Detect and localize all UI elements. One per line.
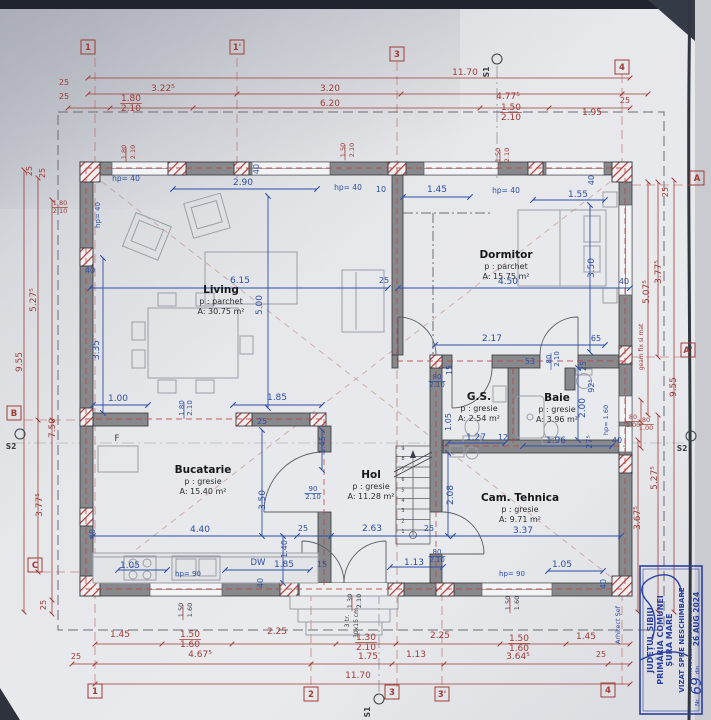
dim-label: 1.50 <box>509 634 529 644</box>
grid-marker-label: 1 <box>92 687 98 697</box>
dim-label: 3.77⁵ <box>35 493 45 517</box>
dim-label: 1.80 <box>120 145 128 159</box>
dim-label: 1.45 <box>318 436 327 454</box>
room-area: A: 3.96 m² <box>536 415 578 424</box>
dim-label: 2.10 <box>503 148 511 162</box>
grid-marker-label: C <box>32 561 38 571</box>
room-name: Hol <box>361 469 381 481</box>
dim-label: 2.63 <box>362 524 382 534</box>
dim-label: 25 <box>71 652 81 661</box>
dim-label: 2.10 <box>121 104 141 114</box>
dim-label: hp= 40 <box>334 183 362 192</box>
dim-label: 1.05 <box>120 561 140 571</box>
floor-plan-drawing: 11.703.22⁵3.204.77⁵2525251.802.106.201.5… <box>0 0 711 720</box>
dim-label: 3 tr. <box>343 615 351 628</box>
dim-label: 25 <box>25 166 34 176</box>
dim-label: 3.22⁵ <box>151 84 175 94</box>
dim-label: 10 <box>376 185 386 194</box>
stamp-text-line: VIZAT SPRE NESCHIMBARE <box>678 587 686 692</box>
dim-label: 6.20 <box>320 99 340 109</box>
stamp-text-line: ȘURA MARE <box>665 613 675 666</box>
grid-marker-label: 3' <box>438 690 447 700</box>
dim-label: 1.50 <box>504 596 512 610</box>
dim-label: hp= 40 <box>112 174 140 183</box>
dim-label: 80 <box>629 413 637 421</box>
dim-label: hp= 90 <box>499 570 525 578</box>
dim-label: 2.10 <box>186 400 194 416</box>
dim-label: 1.00 <box>639 424 653 432</box>
section-marker-label: S2 <box>677 444 688 453</box>
grid-marker-label: 2 <box>308 690 314 700</box>
dim-label: 3.64⁵ <box>506 652 530 662</box>
dim-label: 3.50 <box>258 490 268 510</box>
stamp-text-line: Arhitect Șef <box>614 605 622 644</box>
dim-label: 1.00 <box>108 394 128 404</box>
dim-label: 1.13 <box>404 558 424 568</box>
room-name: Dormitor <box>479 249 533 261</box>
dim-label: 40 <box>85 266 95 275</box>
stair-step-number: 7 <box>401 467 404 473</box>
dim-label: F <box>115 434 120 444</box>
stair-step-number: 4 <box>401 498 404 504</box>
room-name: G.S. <box>467 391 491 403</box>
dim-label: 4.77⁵ <box>496 92 520 102</box>
dim-label: 1.60 <box>513 596 521 610</box>
grid-marker-label: 1 <box>85 43 91 53</box>
stair-step-number: 9 <box>401 446 404 452</box>
dim-label: 1.80 <box>53 199 67 207</box>
dim-label: 25 <box>424 524 434 533</box>
room-area: A: 11.28 m² <box>347 492 394 501</box>
dim-label: 2.10 <box>129 145 137 159</box>
dim-label: 7.50 <box>48 418 58 438</box>
dim-label: 25 <box>579 361 588 371</box>
dim-label: 3.37 <box>513 526 533 536</box>
dim-label: 25 <box>59 78 69 87</box>
dim-label: 80 <box>433 548 442 556</box>
dim-label: 25 <box>661 187 670 197</box>
stair-step-number: 6 <box>401 477 404 483</box>
dim-label: 5.00 <box>255 295 265 315</box>
dim-label: 40 <box>599 579 608 589</box>
dim-label: geam fix si mat <box>638 323 645 370</box>
dim-label: hp= 90 <box>175 570 201 578</box>
room-floor: p : gresie <box>538 405 575 414</box>
dim-label: 1.45 <box>110 630 130 640</box>
dim-label: 40 <box>88 529 97 539</box>
dim-label: 1.50 <box>339 143 347 157</box>
dim-label: 2.10 <box>355 594 363 608</box>
dim-label: 1.40 <box>280 540 289 558</box>
dim-label: 9.55 <box>669 377 679 397</box>
dim-label: 25 <box>39 600 48 610</box>
stair-step-number: 5 <box>401 487 404 493</box>
grid-marker-label: 3 <box>389 688 395 698</box>
dim-label: 4.40 <box>190 525 210 535</box>
dim-label: 3.50 <box>587 258 597 278</box>
dim-label: 15 <box>317 560 327 569</box>
dim-label: 1.05 <box>552 560 572 570</box>
dim-label: 2.25 <box>267 627 287 637</box>
dim-label: 2.10 <box>429 556 445 564</box>
stair-step-number: 8 <box>401 456 404 462</box>
dim-label: 30x15 cm <box>353 608 360 638</box>
scanned-floor-plan-page: 11.703.22⁵3.204.77⁵2525251.802.106.201.5… <box>0 0 711 720</box>
dim-label: 1.45 <box>576 632 596 642</box>
section-marker-label: S1 <box>482 67 491 78</box>
dim-label: 1.13 <box>406 650 426 660</box>
dim-label: 1.80 <box>121 94 141 104</box>
grid-marker-label: A <box>694 174 701 184</box>
stamp-text-line: 69 <box>689 677 705 695</box>
dim-label: 25 <box>59 92 69 101</box>
room-floor: p : gresie <box>501 505 538 514</box>
dim-label: 5.07⁵ <box>642 280 652 304</box>
stair-step-number: 2 <box>401 519 404 525</box>
dim-label: 25 <box>38 168 47 178</box>
dim-label: 80 <box>642 416 650 424</box>
dim-label: 25 <box>596 650 606 659</box>
dim-label: 40 <box>252 164 261 174</box>
dim-label: 92⁵ <box>587 379 596 392</box>
section-marker-label: S1 <box>363 707 372 718</box>
dim-label: 2.08 <box>446 485 456 505</box>
grid-marker-label: 3 <box>394 50 400 60</box>
dim-label: 40 <box>256 578 265 588</box>
room-name: Cam. Tehnica <box>481 492 559 504</box>
dim-label: hp= 40 <box>492 186 520 195</box>
dim-label: 65 <box>591 334 601 343</box>
dim-label: 3.67⁵ <box>633 506 643 530</box>
dim-label: 1.50 <box>501 103 521 113</box>
dim-label: 40 <box>587 175 596 185</box>
dim-label: 80 <box>433 373 442 381</box>
dim-label: 2.00 <box>578 398 588 418</box>
room-area: A: 30.75 m² <box>197 307 244 316</box>
dim-label: 2.10 <box>429 381 445 389</box>
dim-label: 2.25 <box>430 631 450 641</box>
stair-step-number: 1 <box>401 529 404 535</box>
grid-marker-label: B <box>11 409 17 419</box>
dim-label: 1.95 <box>582 108 602 118</box>
stair-step-number: 3 <box>401 508 404 514</box>
dim-label: 5.27⁵ <box>650 466 660 490</box>
dim-label: 1.55 <box>568 190 588 200</box>
dim-label: 25 <box>379 276 389 285</box>
dim-label: 11.70 <box>452 68 478 78</box>
dim-label: 53 <box>525 357 535 366</box>
room-floor: p : gresie <box>184 477 221 486</box>
stamp-text-line: PRIMĂRIA COMUNEI <box>654 595 665 685</box>
dim-label: 80 <box>545 355 553 364</box>
dim-label: 1.85 <box>267 393 287 403</box>
dim-label: 2.10 <box>501 113 521 123</box>
dim-label: 2.17 <box>482 334 502 344</box>
grid-marker-label: 4 <box>619 63 625 73</box>
room-name: Living <box>203 284 239 296</box>
dim-label: 4.67⁵ <box>188 650 212 660</box>
room-name: Bucatarie <box>175 464 232 476</box>
room-area: A: 15.75 m² <box>482 272 529 281</box>
dim-label: 1.85 <box>274 560 294 570</box>
section-marker-label: S2 <box>6 442 17 451</box>
stamp-text-line: Nr. <box>695 698 701 706</box>
dim-label: 1.80 <box>178 400 186 416</box>
dim-label: 25 <box>620 96 630 105</box>
dim-label: hp= 40 <box>94 202 102 228</box>
dim-label: 1.96 <box>546 436 566 446</box>
dim-label: 1.27 <box>466 433 486 443</box>
room-floor: p : gresie <box>460 404 497 413</box>
dim-label: 2.10 <box>348 143 356 157</box>
dim-label: 11.70 <box>345 671 371 681</box>
room-area: A: 9.71 m² <box>499 515 541 524</box>
room-area: A: 15.40 m² <box>179 487 226 496</box>
dim-label: 15 <box>445 365 454 375</box>
room-name: Baie <box>544 392 570 404</box>
dim-label: 2.10 <box>305 493 321 501</box>
stamp-text-line: din <box>695 665 701 674</box>
room-floor: p : gresie <box>352 482 389 491</box>
dim-label: 3.77⁵ <box>654 260 664 284</box>
room-floor: p : parchet <box>484 262 527 271</box>
dim-label: 1.60 <box>180 640 200 650</box>
dim-label: 2.10 <box>53 207 67 215</box>
dim-label: 25 <box>298 524 308 533</box>
stamp-text-line: 26 AUG 2024 <box>692 592 701 646</box>
grid-marker-label: 1' <box>233 43 242 53</box>
dim-label: hp= 1.60 <box>602 405 610 435</box>
dim-label: 3.35 <box>92 340 102 360</box>
dim-label: 1.50 <box>180 630 200 640</box>
dim-label: 5.27⁵ <box>29 288 39 312</box>
dim-label: 40 <box>612 436 622 445</box>
dim-label: 2.10 <box>553 351 561 367</box>
dim-label: 9.55 <box>15 352 25 372</box>
room-floor: p : parchet <box>199 297 242 306</box>
dim-label: 90 <box>309 485 318 493</box>
dim-label: 3.20 <box>320 84 340 94</box>
grid-marker-label: 4 <box>605 686 611 696</box>
dim-label: 25 <box>257 417 267 426</box>
dim-label: 2.90 <box>233 178 253 188</box>
dim-label: 1.50 <box>494 148 502 162</box>
dim-label: 1.30 <box>346 594 354 608</box>
grid-marker-label: A' <box>683 346 692 356</box>
dim-label: 1.75 <box>358 652 378 662</box>
dim-label: 27⁵ <box>585 435 594 448</box>
room-area: A: 2.54 m² <box>458 414 500 423</box>
dim-label: 40 <box>619 277 629 286</box>
dim-label: 1.50 <box>177 603 185 617</box>
dim-label: 1.05 <box>444 413 453 431</box>
dim-label: DW <box>251 558 267 568</box>
dim-label: 1.60 <box>186 603 194 617</box>
dim-label: 1.45 <box>427 185 447 195</box>
dim-label: 12 <box>498 433 508 442</box>
